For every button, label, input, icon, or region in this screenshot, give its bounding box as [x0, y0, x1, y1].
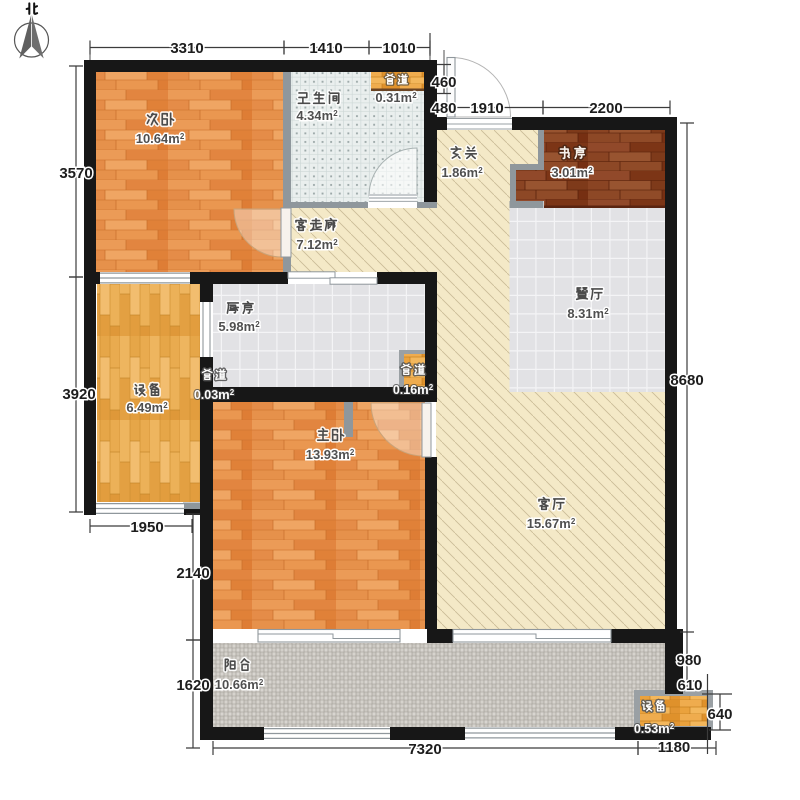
svg-text:8680: 8680 — [670, 372, 703, 389]
svg-text:4.34m2: 4.34m2 — [296, 108, 338, 123]
svg-text:1910: 1910 — [470, 100, 503, 117]
svg-text:0.53m2: 0.53m2 — [634, 721, 675, 736]
svg-text:7320: 7320 — [408, 741, 441, 758]
svg-text:2140: 2140 — [176, 565, 209, 582]
svg-text:1950: 1950 — [130, 519, 163, 536]
svg-text:10.64m2: 10.64m2 — [136, 131, 185, 146]
svg-text:2200: 2200 — [589, 100, 622, 117]
svg-text:13.93m2: 13.93m2 — [306, 447, 355, 462]
svg-text:1.86m2: 1.86m2 — [441, 165, 483, 180]
svg-text:3920: 3920 — [62, 386, 95, 403]
svg-text:480: 480 — [431, 100, 456, 117]
svg-text:0.03m2: 0.03m2 — [194, 387, 235, 402]
svg-text:610: 610 — [677, 677, 702, 694]
svg-text:3310: 3310 — [170, 40, 203, 57]
svg-text:10.66m2: 10.66m2 — [215, 677, 264, 692]
svg-text:7.12m2: 7.12m2 — [296, 237, 338, 252]
svg-text:3570: 3570 — [59, 165, 92, 182]
svg-text:1010: 1010 — [382, 40, 415, 57]
svg-text:1180: 1180 — [658, 739, 691, 756]
svg-text:1410: 1410 — [309, 40, 342, 57]
svg-text:8.31m2: 8.31m2 — [567, 306, 609, 321]
svg-text:6.49m2: 6.49m2 — [126, 400, 168, 415]
svg-text:3.01m2: 3.01m2 — [551, 165, 593, 180]
svg-text:460: 460 — [431, 74, 456, 91]
svg-text:640: 640 — [707, 706, 732, 723]
svg-text:980: 980 — [676, 652, 701, 669]
svg-text:1620: 1620 — [176, 677, 209, 694]
svg-text:5.98m2: 5.98m2 — [218, 319, 260, 334]
svg-text:0.31m2: 0.31m2 — [375, 90, 417, 105]
svg-text:15.67m2: 15.67m2 — [527, 516, 576, 531]
svg-text:0.16m2: 0.16m2 — [393, 382, 434, 397]
